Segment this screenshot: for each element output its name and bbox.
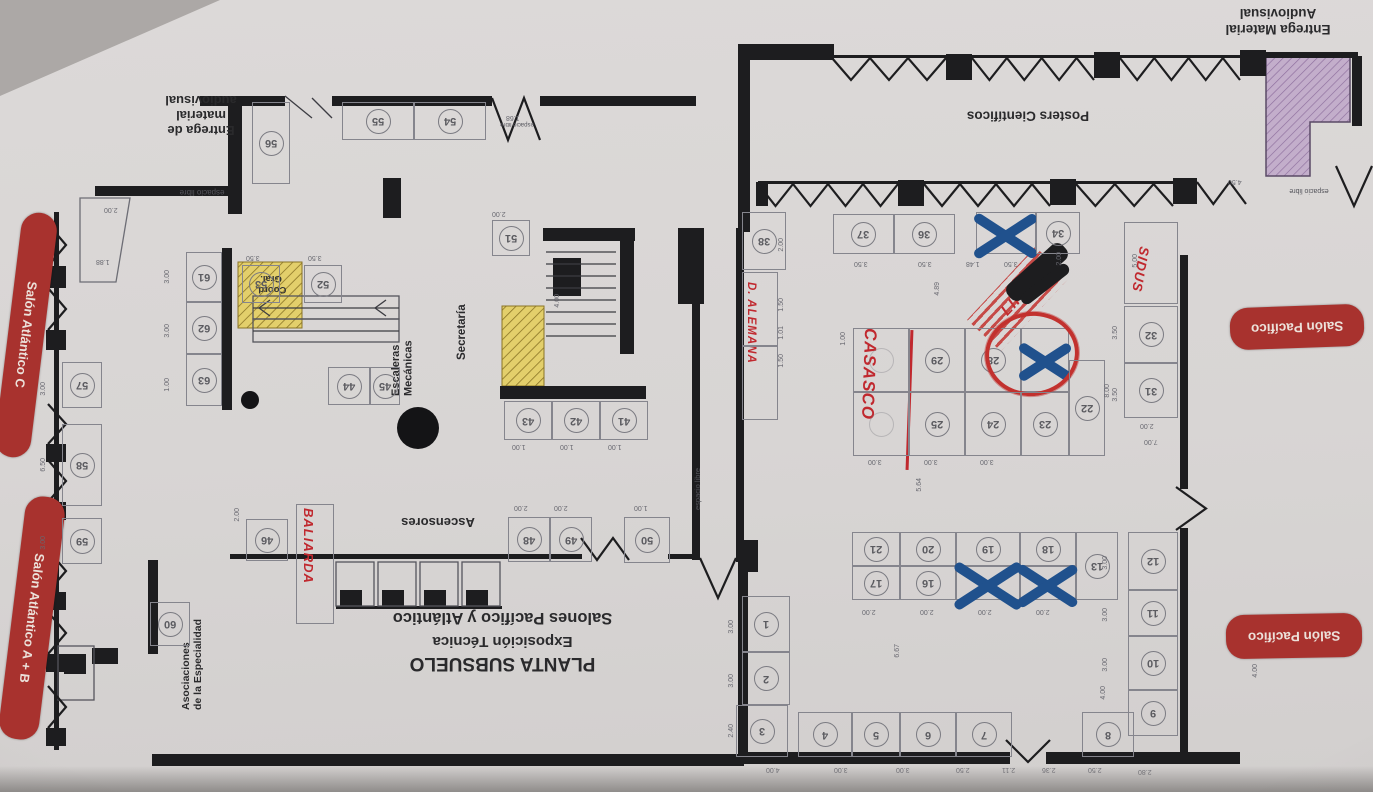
booth-number-circle: 5 [864,722,889,747]
booth-63: 63 [186,354,222,406]
booth-2: 2 [742,652,790,705]
dimension-label: 1.01 [778,326,785,340]
booth-number-circle: 18 [1036,537,1061,562]
booth-32: 32 [1124,306,1178,363]
booth-26 [853,392,909,456]
secretaria-zone [502,306,544,386]
booth-16: 16 [900,566,956,600]
booth-61: 61 [186,252,222,302]
booth-8: 8 [1082,712,1134,757]
booth-number-circle [869,348,894,373]
dimension-label: 1.00 [840,332,847,346]
dimension-label: 3.50 [1004,260,1018,267]
booth-number-circle: 12 [1141,549,1166,574]
booth-55: 55 [342,102,414,140]
booth-7: 7 [956,712,1012,757]
dimension-label: 5.64 [916,478,923,492]
label-espacio-libre-1: espacio libre [146,188,258,197]
dimension-label: 4.50 [1228,178,1242,185]
booth-number-circle: 22 [1075,396,1100,421]
booth-number-circle: 44 [337,374,362,399]
booth-number-circle: 59 [70,529,95,554]
blue-x-mark [952,562,1024,604]
dimension-label: 2.00 [1056,252,1063,266]
dimension-label: 5.00 [1132,254,1139,268]
pill-salon-pacifico-2: Salón Pacífico [1226,613,1363,659]
booth-22: 22 [1069,360,1105,456]
booth-29: 29 [909,328,965,392]
booth-number-circle: 19 [976,537,1001,562]
dimension-label: 1.00 [512,443,526,450]
dimension-label: 1.00 [634,504,648,511]
dimension-label: 2.40 [728,724,735,738]
booth-number-circle: 20 [916,537,941,562]
dimension-label: 3.00 [1102,608,1109,622]
booth-number-circle: 37 [851,222,876,247]
label-espacio-libre-3: espacio libre [694,424,703,510]
booth-number-circle: 10 [1141,651,1166,676]
dimension-label: 3.00 [1102,658,1109,672]
booth-51: 51 [492,220,530,256]
booth-49: 49 [550,517,592,562]
booth-52: 52 [304,265,342,303]
dimension-label: 2.00 [920,608,934,615]
booth-number-circle: 54 [438,109,463,134]
booth-number-circle: 56 [259,131,284,156]
dimension-label: 3.00 [868,458,882,465]
dimension-label: 1.00 [560,443,574,450]
booth-number-circle: 3 [750,719,775,744]
booth-47 [296,504,334,624]
booth-6: 6 [900,712,956,757]
booth-number-circle: 34 [1046,221,1071,246]
booth-number-circle: 24 [981,412,1006,437]
label-espacio-libre-2: espacio libre [492,120,542,127]
booth-46: 46 [246,519,288,561]
booth-number-circle: 58 [70,453,95,478]
booth-40 [742,346,778,420]
booth-number-circle: 60 [158,612,183,637]
dimension-label: 3.00 [164,270,171,284]
booth-number-circle: 50 [635,528,660,553]
booth-43: 43 [504,401,552,440]
booth-number-circle: 1 [754,612,779,637]
booth-number-circle: 4 [813,722,838,747]
booth-number-circle: 41 [612,408,637,433]
booth-number-circle: 8 [1096,722,1121,747]
booth-45: 45 [370,367,400,405]
booth-30 [853,328,909,392]
booth-number-circle: 45 [373,374,398,399]
dimension-label: 3.00 [728,674,735,688]
label-secretaria: Secretaría [456,288,469,360]
dimension-label: 7.00 [1144,438,1158,445]
booth-17: 17 [852,566,900,600]
booth-number-circle: 25 [925,412,950,437]
floor-plan-photo: Entrega Material Audiovisual Entrega de … [0,0,1373,792]
booth-number-circle: 51 [499,226,524,251]
dimension-label: 1.00 [608,443,622,450]
booth-58: 58 [62,424,102,506]
booth-34: 34 [1036,212,1080,254]
pill-salon-pacifico-1: Salón Pacífico [1229,304,1364,351]
booth-number-circle: 17 [864,571,889,596]
booth-48: 48 [508,517,550,562]
booth-number-circle: 49 [559,527,584,552]
label-entrega-de-material: Entrega de material audiovisual [138,92,264,137]
booth-10: 10 [1128,636,1178,690]
booth-41: 41 [600,401,648,440]
booth-59: 59 [62,518,102,564]
dimension-label: 2.00 [104,206,118,213]
booth-21: 21 [852,532,900,566]
booth-13: 13 [1076,532,1118,600]
booth-24: 24 [965,392,1021,456]
dimension-label: 3.50 [246,254,260,261]
dimension-label: 2.00 [492,210,506,217]
dimension-label: 2.00 [862,608,876,615]
booth-62: 62 [186,302,222,354]
booth-53: 53 [242,265,280,303]
booth-37: 37 [833,214,894,254]
booth-54: 54 [414,102,486,140]
booth-18: 18 [1020,532,1076,566]
dimension-label: 2.00 [778,238,785,252]
photo-edge-shadow [0,766,1373,792]
booth-number-circle: 2 [754,666,779,691]
dimension-label: 4.00 [1100,686,1107,700]
booth-number-circle: 31 [1139,378,1164,403]
label-espacio-libre-4: espacio libre [1278,186,1340,194]
dimension-label: 2.00 [1140,422,1154,429]
booth-number-circle: 32 [1139,322,1164,347]
booth-number-circle: 62 [192,316,217,341]
dimension-label: 3.50 [308,254,322,261]
booth-number-circle: 36 [912,222,937,247]
dimension-label: 1.88 [96,258,110,265]
entrega-material-zone [1266,56,1350,176]
booth-42: 42 [552,401,600,440]
dimension-label: 1.48 [966,260,980,267]
booth-number-circle: 16 [916,571,941,596]
dimension-label: 4.00 [1252,664,1259,678]
booth-number-circle: 9 [1141,701,1166,726]
label-ascensores: Ascensores [390,514,486,529]
booth-number-circle: 57 [70,373,95,398]
booth-number-circle: 29 [925,348,950,373]
booth-1: 1 [742,596,790,652]
dimension-label: 3.00 [164,324,171,338]
booth-56: 56 [252,102,290,184]
booth-number-circle: 42 [564,408,589,433]
dimension-label: 1.00 [164,378,171,392]
booth-23: 23 [1021,392,1069,456]
dimension-label: 4.00 [554,294,561,308]
booth-20: 20 [900,532,956,566]
booth-3: 3 [736,705,788,757]
dimension-label: 4.89 [934,282,941,296]
booth-number-circle: 6 [916,722,941,747]
booth-19: 19 [956,532,1020,566]
booth-4: 4 [798,712,852,757]
booth-60: 60 [150,602,190,646]
dimension-label: 2.00 [234,508,241,522]
booth-5: 5 [852,712,900,757]
dimension-label: 6.67 [894,644,901,658]
dimension-label: 3.50 [1112,388,1119,402]
dimension-label: 8.00 [1104,384,1111,398]
booth-number-circle: 43 [516,408,541,433]
booth-number-circle: 21 [864,537,889,562]
booth-number-circle: 23 [1033,412,1058,437]
dimension-label: 2.00 [554,504,568,511]
dimension-label: 1.50 [778,354,785,368]
booth-57: 57 [62,362,102,408]
dimension-label: 1.50 [778,298,785,312]
booth-31: 31 [1124,363,1178,418]
booth-number-circle: 53 [249,272,274,297]
dimension-label: 2.00 [978,608,992,615]
booth-number-circle: 7 [972,722,997,747]
booth-number-circle: 61 [192,265,217,290]
dimension-label: 3.00 [728,620,735,634]
booth-11: 11 [1128,590,1178,636]
dimension-label: 3.00 [40,382,47,396]
blue-x-mark [1016,562,1080,604]
booth-12: 12 [1128,532,1178,590]
dimension-label: 3.00 [40,536,47,550]
plan-title: PLANTA SUBSUELO Exposición Técnica Salon… [350,608,655,674]
dimension-label: 3.50 [1112,326,1119,340]
booth-number-circle: 55 [366,109,391,134]
dimension-label: 2.00 [1036,608,1050,615]
dimension-label: 3.00 [980,458,994,465]
booth-50: 50 [624,517,670,563]
booth-number-circle: 46 [255,528,280,553]
booth-44: 44 [328,367,370,405]
booth-number-circle [869,412,894,437]
booth-number-circle: 52 [311,272,336,297]
dimension-label: 3.00 [1102,556,1109,570]
blue-x-mark [972,208,1040,258]
dimension-label: 1.68 [506,114,520,121]
booth-25: 25 [909,392,965,456]
dimension-label: 3.50 [918,260,932,267]
label-posters-cientificos: Posters Científicos [944,108,1112,124]
dimension-label: 3.00 [924,458,938,465]
booth-number-circle: 11 [1141,601,1166,626]
dimension-label: 3.50 [854,260,868,267]
booth-36: 36 [894,214,955,254]
booth-9: 9 [1128,690,1178,736]
dimension-label: 2.00 [514,504,528,511]
booth-number-circle: 38 [752,229,777,254]
booth-39 [742,272,778,346]
booth-number-circle: 63 [192,368,217,393]
dimension-label: 6.50 [40,458,47,472]
booth-number-circle: 48 [517,527,542,552]
label-entrega-material-audiovisual: Entrega Material Audiovisual [1188,6,1368,37]
